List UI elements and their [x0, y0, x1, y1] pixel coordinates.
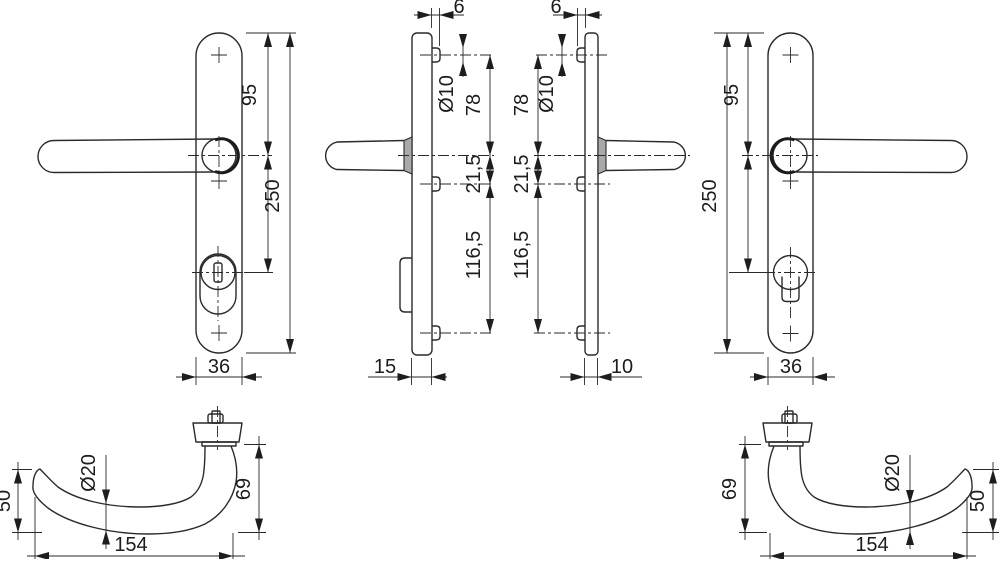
- dim-grip-diameter: Ø20: [78, 454, 100, 492]
- dim-plate-depth: 10: [611, 356, 633, 378]
- spindle-boss: [782, 414, 797, 423]
- grip-left-dimensions: 50 Ø20 154 69: [0, 436, 266, 559]
- grip-profile-left-view: 50 Ø20 154 69: [0, 406, 266, 559]
- fixing-clips: [577, 48, 585, 340]
- dim-clip-diameter: Ø10: [436, 75, 458, 113]
- dim-plate-depth: 15: [374, 356, 396, 378]
- lever-handle: [794, 139, 967, 173]
- spindle-boss: [208, 414, 223, 423]
- dim-neck-height: 69: [719, 478, 741, 500]
- grip-right-dimensions: 69 Ø20 154 50: [719, 436, 999, 559]
- front-right-dimensions: 95 250 36: [699, 33, 835, 385]
- plate-side-outline: [412, 33, 432, 355]
- dim-clip-protrusion: 6: [550, 0, 561, 18]
- spindle-square: [212, 411, 220, 423]
- side-right-dim-clip: 6 Ø10: [536, 0, 602, 113]
- dim-top-clip-to-handle: 78: [463, 94, 485, 116]
- dim-grip-length: 154: [114, 534, 147, 556]
- dim-grip-diameter: Ø20: [882, 454, 904, 492]
- side-left-dim-chain: 78 21,5 116,5: [463, 55, 494, 333]
- plate-side-outline: [585, 33, 598, 355]
- grip-profile-right-view: 69 Ø20 154 50: [719, 406, 999, 559]
- grip-outline: [33, 446, 237, 534]
- front-right-view: 95 250 36: [699, 33, 967, 385]
- dim-grip-drop: 50: [967, 490, 989, 512]
- screw-marks: [211, 47, 227, 341]
- dim-total-height: 250: [262, 179, 284, 212]
- cylinder-housing: [400, 258, 412, 312]
- side-right-view: 6 Ø10 78 21,5 116,5 10: [511, 0, 690, 385]
- dim-handle-to-mid-clip: 21,5: [511, 155, 533, 194]
- spindle-square: [785, 411, 793, 423]
- dim-plate-width: 36: [780, 356, 802, 378]
- dim-clip-protrusion: 6: [453, 0, 464, 18]
- dim-clip-diameter: Ø10: [536, 75, 558, 113]
- side-left-view: 6 Ø10 78 21,5 116,5 15: [326, 0, 494, 385]
- dim-grip-length: 154: [855, 534, 888, 556]
- backplate-outline: [768, 33, 813, 353]
- dim-plate-width: 36: [208, 356, 230, 378]
- dim-neck-height: 69: [233, 478, 255, 500]
- front-left-dimensions: 95 250 36: [176, 33, 296, 385]
- dim-mid-to-bottom-clip: 116,5: [511, 231, 533, 280]
- door-handle-dimension-drawing: 95 250 36 6: [0, 0, 1000, 559]
- collar-lip: [202, 442, 236, 446]
- side-right-dim-depth: 10: [560, 356, 642, 385]
- collar-lip: [769, 442, 803, 446]
- technical-drawing-page: 95 250 36 6: [0, 0, 1000, 559]
- dim-top-clip-to-handle: 78: [511, 94, 533, 116]
- dim-mid-to-bottom-clip: 116,5: [463, 231, 485, 280]
- grip-outline: [768, 446, 972, 534]
- dim-top-to-handle: 95: [721, 84, 743, 106]
- dim-total-height: 250: [699, 179, 721, 212]
- front-left-view: 95 250 36: [38, 33, 296, 385]
- dim-handle-to-mid-clip: 21,5: [463, 155, 485, 194]
- dim-top-to-handle: 95: [239, 84, 261, 106]
- lever-side: [326, 141, 404, 171]
- side-left-dim-depth: 15: [368, 356, 447, 385]
- dim-grip-drop: 50: [0, 490, 15, 512]
